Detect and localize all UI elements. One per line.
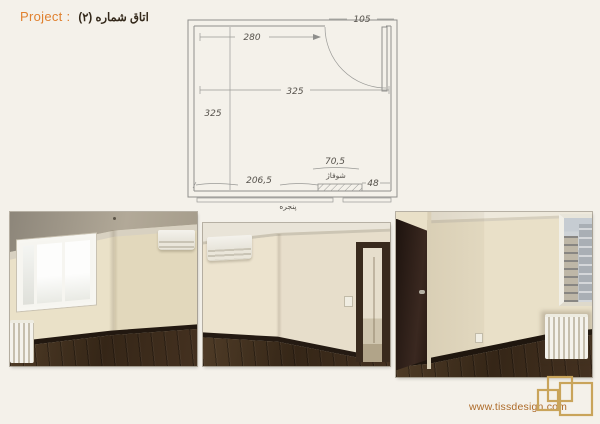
- dim-bottom-left: 206,5: [246, 176, 272, 186]
- wooden-door: [396, 219, 427, 371]
- hallway-view: [363, 248, 382, 362]
- plan-dim-arrow: [313, 34, 321, 40]
- building-view: [579, 224, 592, 302]
- window: [17, 233, 96, 311]
- plan-inner-wall: [194, 26, 391, 191]
- room-photo-window-ac: [10, 212, 197, 366]
- window-pane: [65, 240, 90, 301]
- light-switch: [345, 297, 352, 306]
- floor-plan-sketch: 280 105 325 325 206,5 70,5 شوفاژ 48 پنجر…: [183, 6, 403, 211]
- plan-door-arc: [325, 27, 386, 88]
- plan-window-label: پنجره: [279, 202, 296, 211]
- door-frame: [427, 220, 431, 369]
- plan-radiator-label: شوفاژ: [325, 171, 346, 180]
- dim-inner-width: 325: [286, 87, 303, 97]
- plan-dim-line-70: [313, 168, 359, 170]
- plan-window-sill: [197, 198, 333, 202]
- air-conditioner: [158, 230, 195, 250]
- wall-corner: [109, 230, 118, 338]
- wall-corner: [276, 234, 282, 348]
- project-label: Project :: [20, 9, 70, 24]
- window-pane: [23, 245, 34, 305]
- air-conditioner: [207, 235, 252, 262]
- plan-door-leaf: [382, 27, 387, 91]
- open-doorway: [356, 242, 390, 362]
- radiator: [545, 314, 588, 358]
- dim-right-gap: 48: [367, 179, 379, 189]
- building-view: [564, 236, 579, 302]
- door-handle: [419, 290, 425, 294]
- floor-plan-drawing: 280 105 325 325 206,5 70,5 شوفاژ 48 پنجر…: [183, 6, 403, 211]
- room-photo-door-window: [396, 212, 592, 377]
- dim-top-width: 280: [243, 33, 260, 43]
- tissdesign-logo: [534, 371, 596, 417]
- power-outlet: [476, 334, 482, 341]
- ac-vents: [159, 241, 194, 249]
- hallway-detail: [373, 257, 374, 344]
- ac-vents: [208, 248, 250, 260]
- header: Project : اتاق شماره (۲): [20, 9, 149, 24]
- ceiling-light-point: [113, 217, 116, 220]
- room-title: اتاق شماره (۲): [78, 10, 148, 24]
- radiator: [10, 320, 34, 363]
- room-photo-ac-doorway: [203, 223, 390, 366]
- dim-inner-height: 325: [204, 109, 221, 119]
- plan-window-sill-right: [343, 198, 391, 202]
- window-city-view: [559, 214, 592, 306]
- logo-square-large: [560, 383, 592, 415]
- dim-door: 105: [353, 15, 370, 25]
- dim-radiator-width: 70,5: [325, 157, 345, 167]
- plan-radiator-symbol: [318, 184, 362, 191]
- window-pane: [38, 242, 63, 303]
